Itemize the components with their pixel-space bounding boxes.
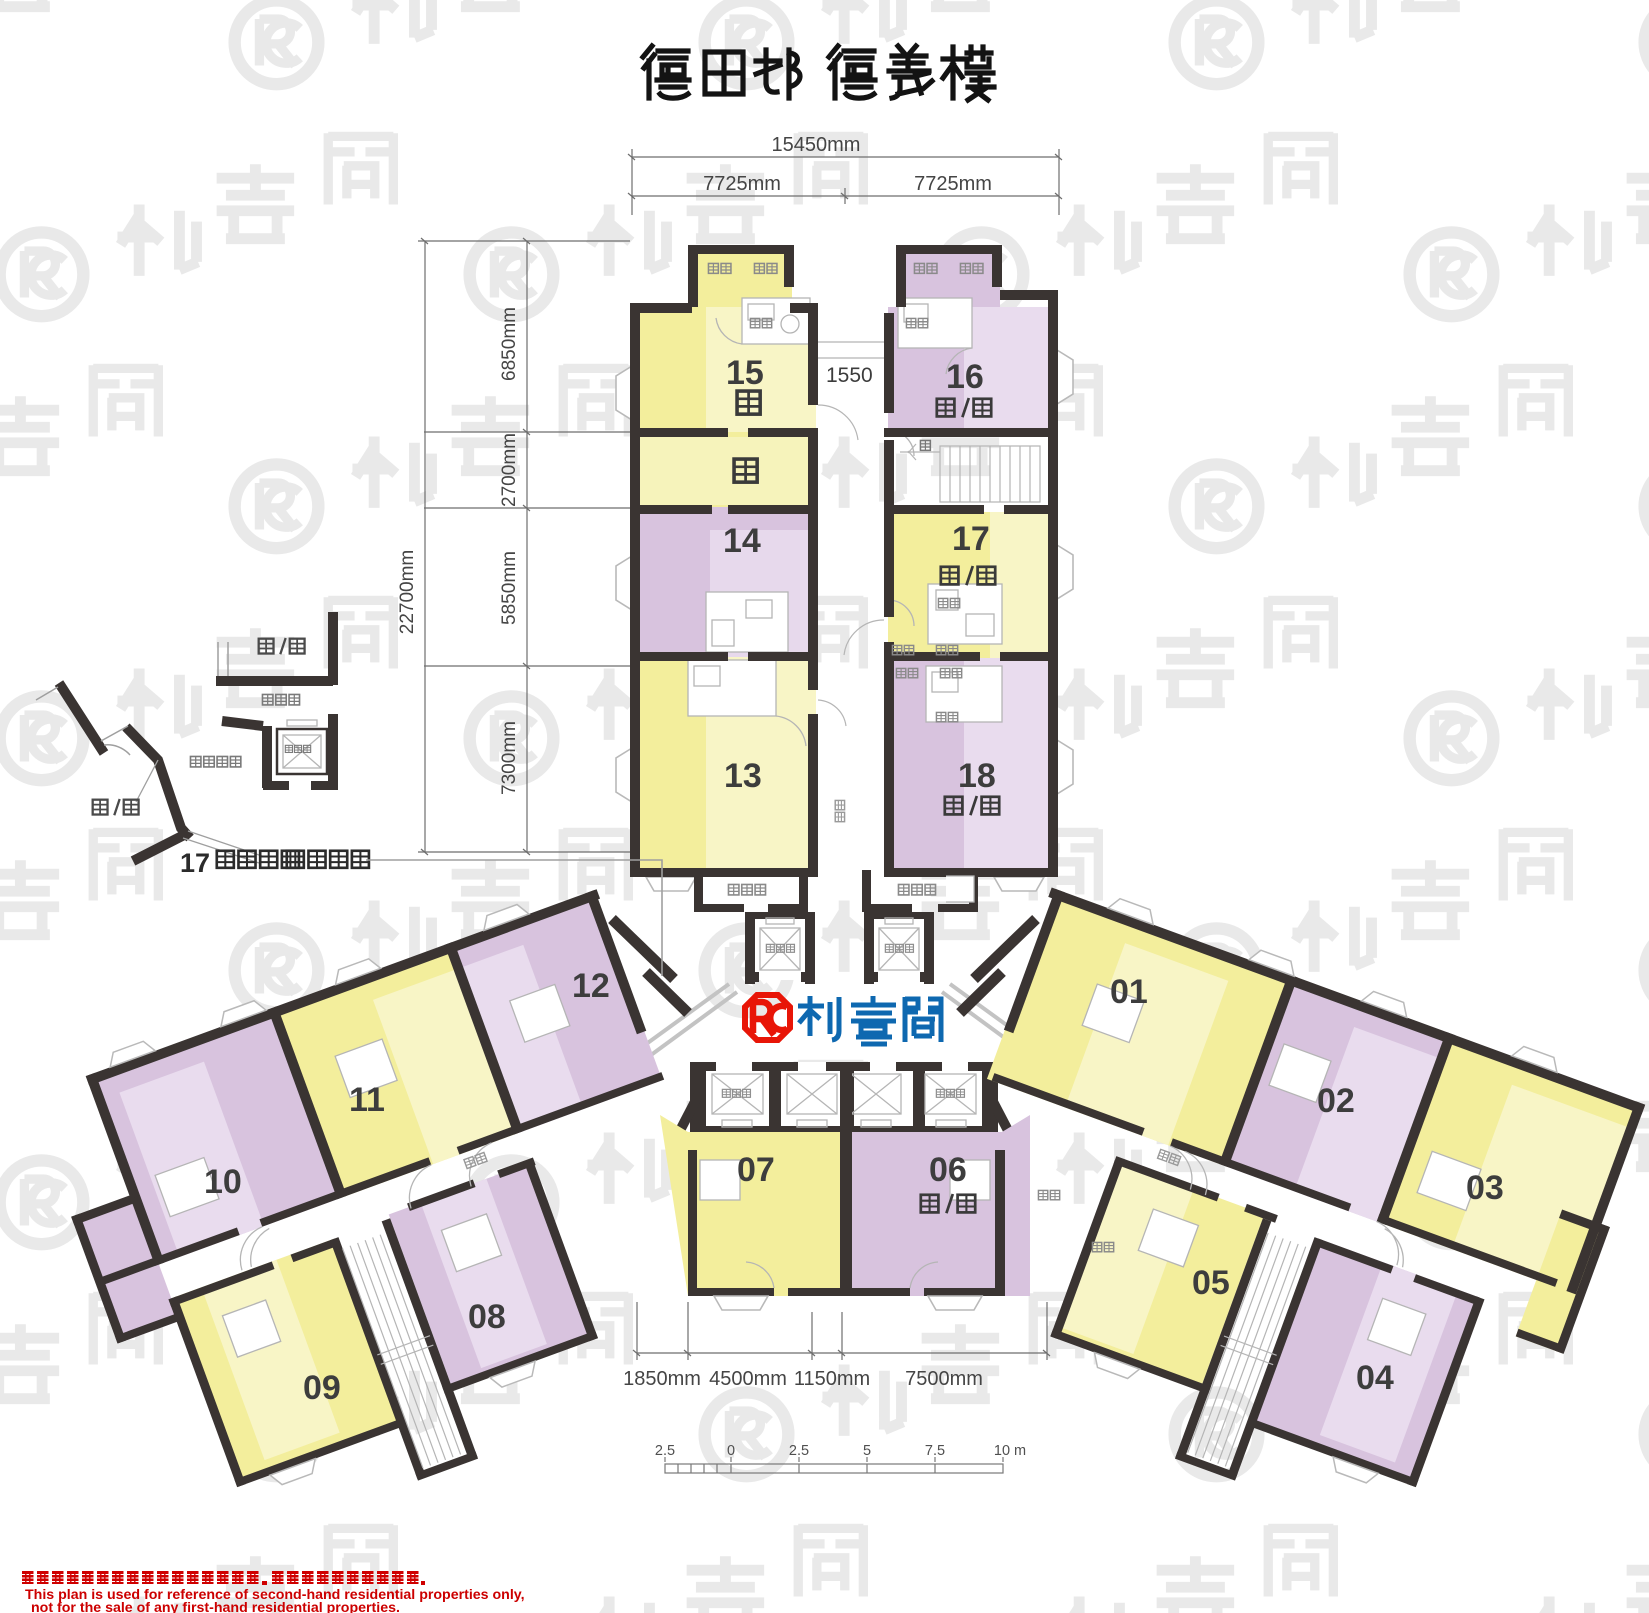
svg-text:7500mm: 7500mm xyxy=(905,1368,983,1390)
svg-text:4500mm: 4500mm xyxy=(709,1368,787,1390)
svg-text:13: 13 xyxy=(724,757,762,795)
svg-text:09: 09 xyxy=(303,1369,341,1407)
svg-text:07: 07 xyxy=(737,1151,775,1189)
svg-text:2.5: 2.5 xyxy=(655,1443,675,1459)
svg-text:17: 17 xyxy=(180,848,210,878)
svg-text:5850mm: 5850mm xyxy=(499,551,520,625)
svg-text:7725mm: 7725mm xyxy=(703,173,781,195)
svg-text:04: 04 xyxy=(1356,1359,1394,1397)
svg-text:7725mm: 7725mm xyxy=(914,173,992,195)
svg-text:7300mm: 7300mm xyxy=(499,721,520,795)
svg-text:1550: 1550 xyxy=(826,364,873,387)
svg-text:15450mm: 15450mm xyxy=(772,134,861,156)
svg-text:16: 16 xyxy=(946,358,984,396)
svg-text:14: 14 xyxy=(723,522,761,560)
svg-text:2700mm: 2700mm xyxy=(499,433,520,507)
svg-text:not for the sale of any first-: not for the sale of any first-hand resid… xyxy=(31,1600,400,1613)
svg-text:05: 05 xyxy=(1192,1264,1230,1302)
svg-text:15: 15 xyxy=(726,354,764,392)
svg-text:1850mm: 1850mm xyxy=(623,1368,701,1390)
svg-text:6850mm: 6850mm xyxy=(499,307,520,381)
svg-text:08: 08 xyxy=(468,1298,506,1336)
svg-text:03: 03 xyxy=(1466,1169,1504,1207)
svg-text:17: 17 xyxy=(952,520,990,558)
svg-text:1150mm: 1150mm xyxy=(794,1368,870,1390)
svg-text:11: 11 xyxy=(349,1081,385,1119)
svg-text:18: 18 xyxy=(958,757,996,795)
svg-text:2.5: 2.5 xyxy=(789,1443,809,1459)
svg-text:01: 01 xyxy=(1110,973,1148,1011)
svg-text:10: 10 xyxy=(204,1163,242,1201)
svg-text:22700mm: 22700mm xyxy=(397,550,418,635)
svg-text:7.5: 7.5 xyxy=(925,1443,945,1459)
svg-text:10 m: 10 m xyxy=(994,1443,1026,1459)
svg-text:12: 12 xyxy=(572,967,610,1005)
svg-text:0: 0 xyxy=(727,1443,735,1459)
svg-text:06: 06 xyxy=(929,1151,967,1189)
svg-text:5: 5 xyxy=(863,1443,871,1459)
svg-text:02: 02 xyxy=(1317,1082,1355,1120)
